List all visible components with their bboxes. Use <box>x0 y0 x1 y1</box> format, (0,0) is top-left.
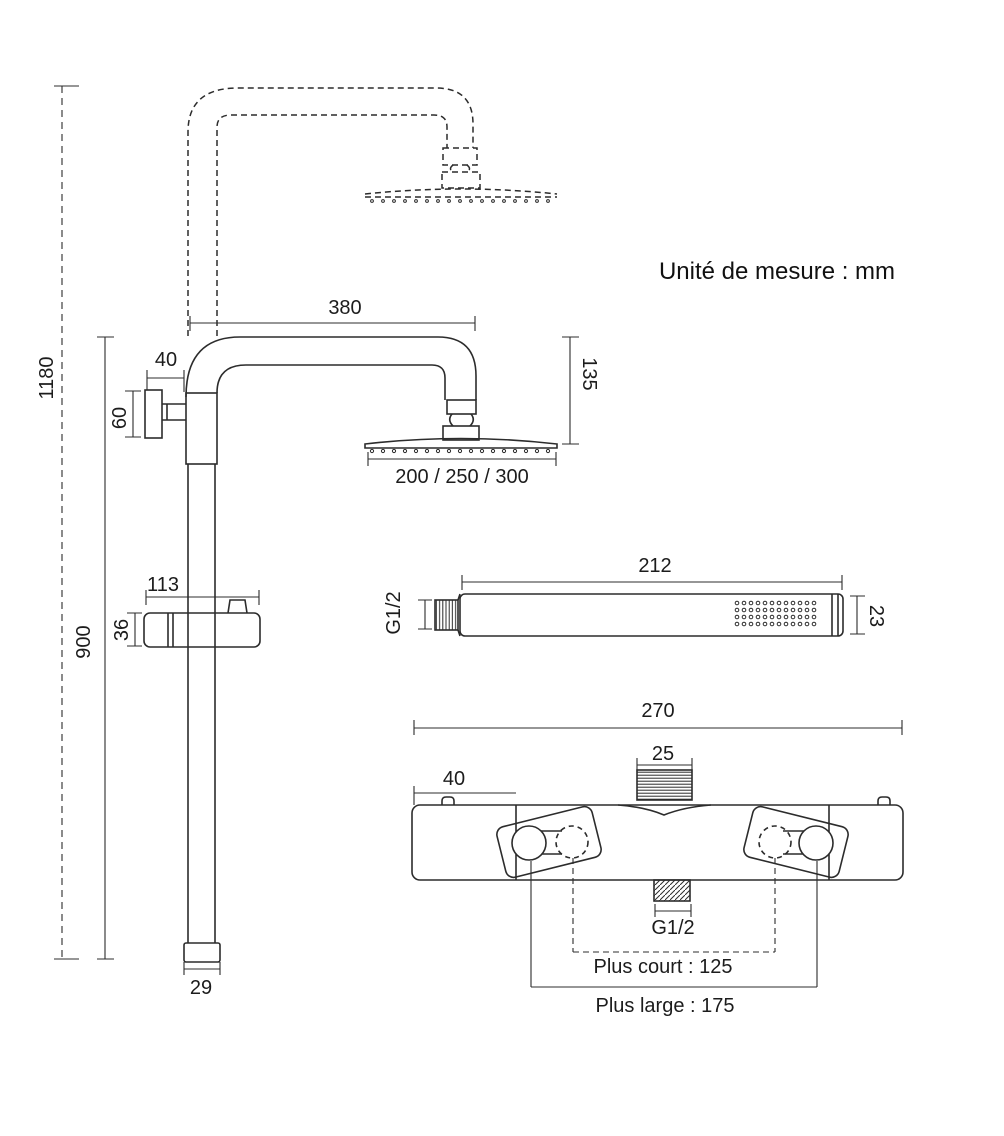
hand-shower-end-lines <box>832 594 838 636</box>
slide-rail <box>188 464 215 943</box>
dim-270 <box>414 720 902 735</box>
mixer-outlet-thread <box>654 880 690 901</box>
dim-label-bracket-height: 60 <box>110 407 130 429</box>
dim-23 <box>850 596 865 634</box>
dim-label-mixer-width: 270 <box>641 701 674 721</box>
dim-label-head-drop: 135 <box>579 357 599 390</box>
shower-column <box>144 337 557 962</box>
thermostatic-mixer <box>412 770 903 901</box>
raised-head-mount <box>442 172 480 188</box>
dim-900 <box>97 337 114 959</box>
slider-holder-knob <box>228 600 247 613</box>
dim-label-handshower-thread: G1/2 <box>384 591 404 634</box>
dim-label-end-cap: 29 <box>190 978 212 998</box>
dim-g12-outlet <box>655 904 691 917</box>
slider-holder <box>144 613 260 647</box>
hand-shower <box>435 594 843 636</box>
arm-raised-position-dashed <box>188 88 557 336</box>
mixer-top-chevron <box>618 805 711 815</box>
dim-label-rail-height: 900 <box>74 625 94 658</box>
dim-label-head-diameters: 200 / 250 / 300 <box>395 467 528 487</box>
rail-end-cap <box>184 943 220 962</box>
mixer-top-thread <box>637 770 692 800</box>
dim-label-spacing-wide: Plus large : 175 <box>596 996 735 1016</box>
dim-label-mixer-end-offset: 40 <box>443 769 465 789</box>
dim-g12-hand <box>418 600 432 629</box>
dim-head-width <box>368 452 556 466</box>
raised-ball-joint <box>451 165 470 172</box>
unit-note: Unité de mesure : mm <box>659 260 895 284</box>
dim-label-mixer-top-thread: 25 <box>652 744 674 764</box>
slider-holder-lines <box>168 613 173 647</box>
dim-label-handshower-length: 212 <box>638 556 671 576</box>
dimension-lines <box>54 86 902 987</box>
head-collar <box>447 400 476 414</box>
dim-label-slider-height: 36 <box>112 619 132 641</box>
hand-shower-spray-dots <box>735 601 816 626</box>
dim-212 <box>462 575 842 590</box>
head-nozzles <box>370 449 549 452</box>
dim-label-mixer-outlet-thread: G1/2 <box>651 918 694 938</box>
riser-sleeve <box>186 393 217 464</box>
arm-inner <box>217 365 445 400</box>
dim-135 <box>562 337 579 444</box>
dim-40-bracket <box>147 370 184 392</box>
raised-collar <box>443 148 477 165</box>
dim-label-overall-height: 1180 <box>37 356 57 399</box>
technical-drawing <box>0 0 1004 1136</box>
left-handle-knob <box>512 826 546 860</box>
dim-label-slider-width: 113 <box>147 575 179 595</box>
hand-shower-thread <box>435 600 458 630</box>
head-ball-joint <box>450 414 474 426</box>
dim-29 <box>184 962 220 975</box>
mixer-body-dividers <box>516 805 829 880</box>
diagram-canvas: Unité de mesure : mm 1180 900 380 40 60 … <box>0 0 1004 1136</box>
dim-label-bracket-offset: 40 <box>155 350 177 370</box>
dim-label-spacing-short: Plus court : 125 <box>594 957 733 977</box>
dim-label-handshower-diameter: 23 <box>866 605 886 627</box>
wall-bracket <box>145 390 162 438</box>
right-handle-knob <box>799 826 833 860</box>
dim-1180-ticks <box>54 86 79 959</box>
dim-label-arm-reach: 380 <box>328 298 361 318</box>
dimension-lines-dashed <box>62 86 775 959</box>
raised-head-nozzles <box>371 200 550 203</box>
raised-head-disc <box>365 189 557 197</box>
wall-bracket-connector <box>162 404 186 420</box>
